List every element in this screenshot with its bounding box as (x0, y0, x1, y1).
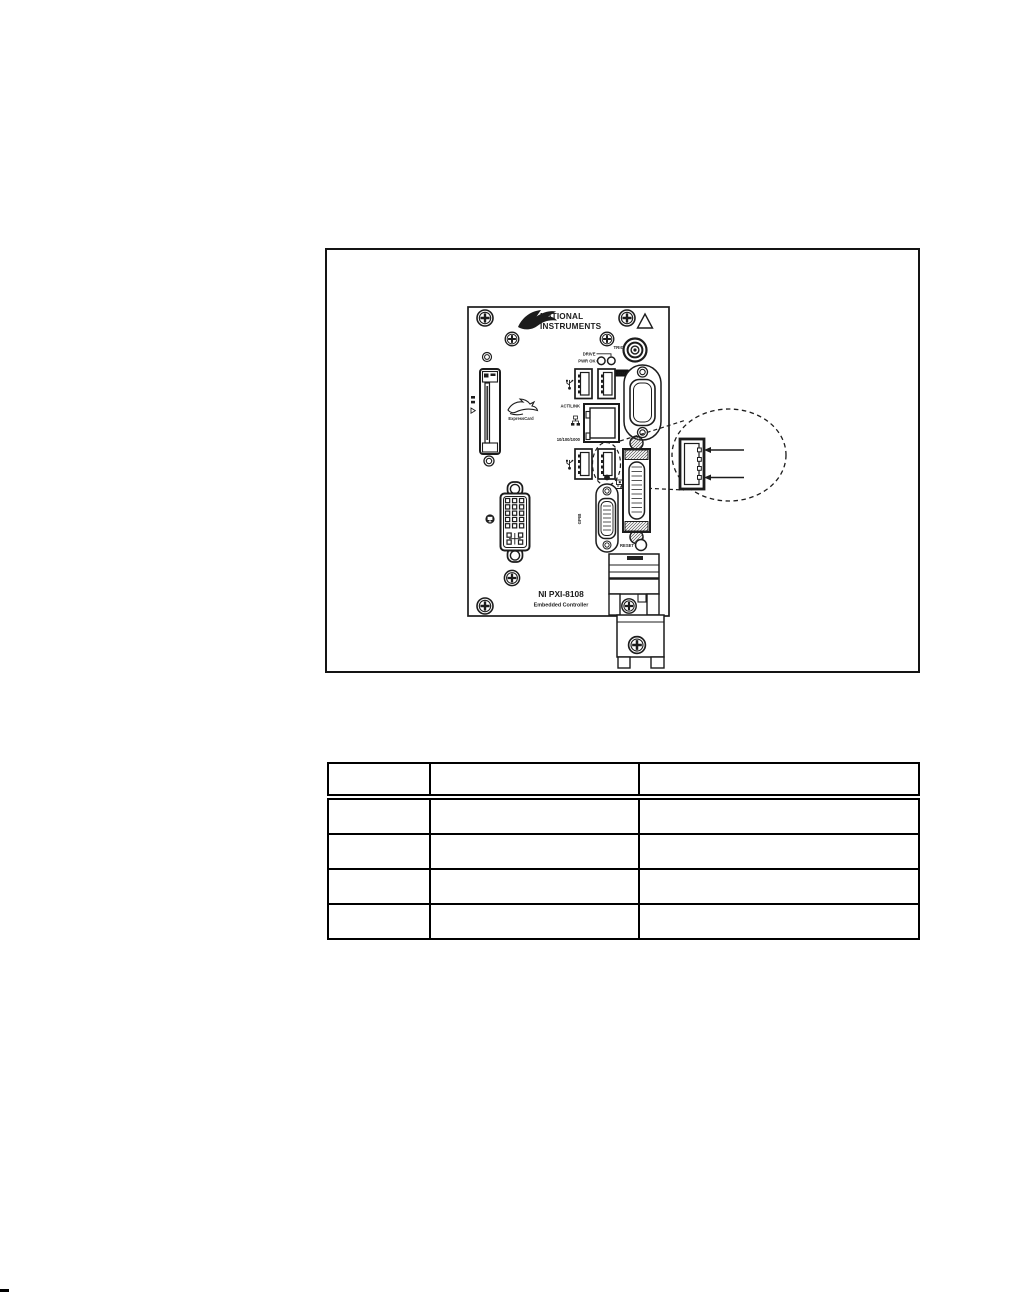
table-row (328, 904, 919, 939)
table-header-cell (328, 763, 430, 797)
pwr-ok-label: PWR OK (578, 359, 595, 364)
table-cell (328, 834, 430, 869)
front-panel-figure: NATIONAL INSTRUMENTS TRIG DRIVE PWR OK C… (325, 248, 920, 673)
drive-label: DRIVE (583, 352, 596, 357)
table-header-cell (430, 763, 639, 797)
model-sub-label: Embedded Controller (534, 603, 590, 609)
table-row (328, 797, 919, 834)
brand-line2: INSTRUMENTS (540, 322, 602, 331)
table-cell (430, 797, 639, 834)
led-drive (608, 357, 616, 365)
brand-line1: NATIONAL (540, 312, 583, 321)
spec-table (327, 762, 920, 940)
gpib-label: GPIB (577, 514, 582, 525)
table-cell (639, 797, 919, 834)
table-header-cell (639, 763, 919, 797)
model-label: NI PXI-8108 (538, 589, 584, 599)
table-row (328, 834, 919, 869)
table-cell (430, 834, 639, 869)
screw-hole (604, 475, 610, 481)
table-cell (430, 904, 639, 939)
eth-speed-label: 10/100/1000 (557, 437, 581, 442)
table-cell (328, 797, 430, 834)
table-cell (639, 904, 919, 939)
table-cell (639, 869, 919, 904)
usb-inset (672, 409, 786, 501)
pin-arrows (704, 447, 744, 481)
page-corner-mark (0, 1289, 9, 1292)
act-link-label: ACT/LINK (560, 404, 580, 409)
display-icon (485, 514, 494, 523)
table-cell (430, 869, 639, 904)
table-header-row (328, 763, 919, 797)
table-cell (639, 834, 919, 869)
peripheral-connector (623, 437, 650, 544)
table-cell (328, 904, 430, 939)
expresscard-label: ExpressCard (508, 416, 534, 421)
led-pwr-ok (598, 357, 606, 365)
manual-page: { "figure": { "brand": { "line1": "NATIO… (0, 0, 1009, 1297)
front-panel-drawing: NATIONAL INSTRUMENTS TRIG DRIVE PWR OK C… (327, 250, 918, 671)
table-cell (328, 869, 430, 904)
table-row (328, 869, 919, 904)
reset-label: RESET (620, 543, 634, 548)
